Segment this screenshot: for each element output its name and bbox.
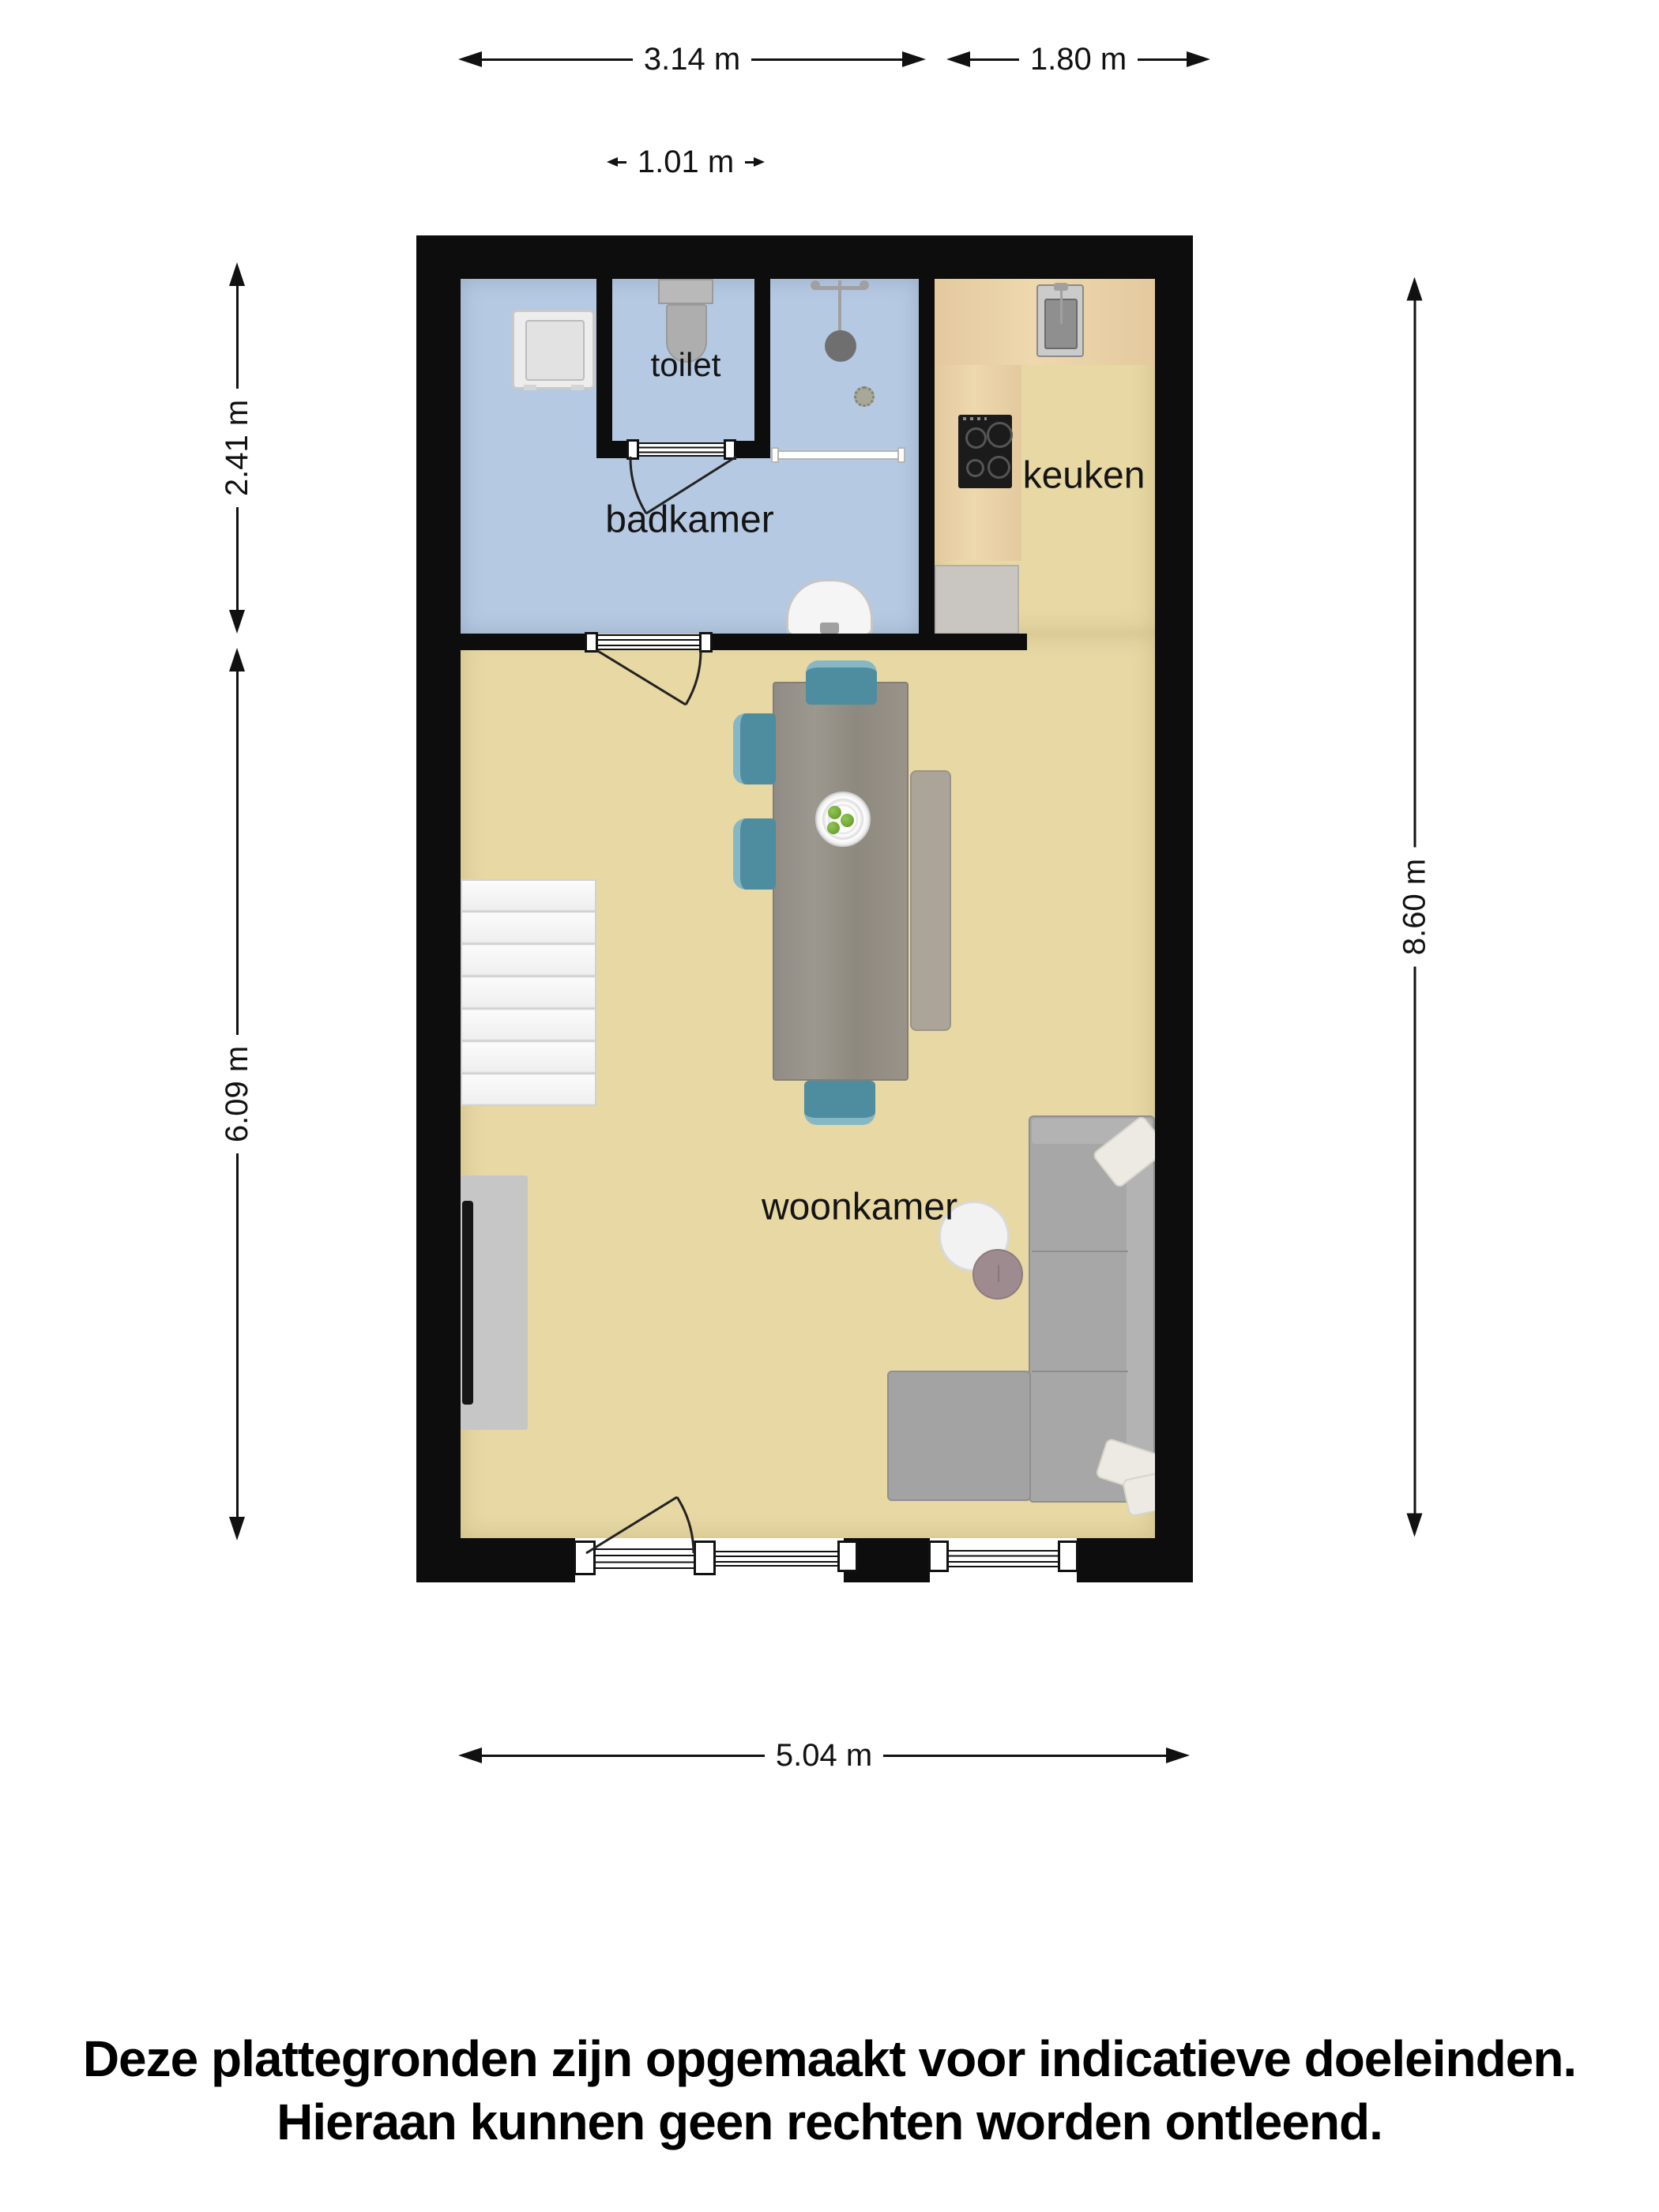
room-label-toilet: toilet [651, 346, 721, 384]
disclaimer-line-2: Hieraan kunnen geen rechten worden ontle… [0, 2090, 1659, 2154]
disclaimer: Deze plattegronden zijn opgemaakt voor i… [0, 2027, 1659, 2154]
door-swing-arcs [0, 0, 1659, 2212]
disclaimer-line-1: Deze plattegronden zijn opgemaakt voor i… [0, 2027, 1659, 2090]
room-label-bathroom: badkamer [605, 498, 773, 542]
floorplan-page: 3.14 m 1.80 m 1.01 m 2.41 m 6.09 m 8.60 … [0, 0, 1659, 2212]
room-label-living: woonkamer [762, 1186, 957, 1229]
room-label-kitchen: keuken [1023, 454, 1145, 498]
